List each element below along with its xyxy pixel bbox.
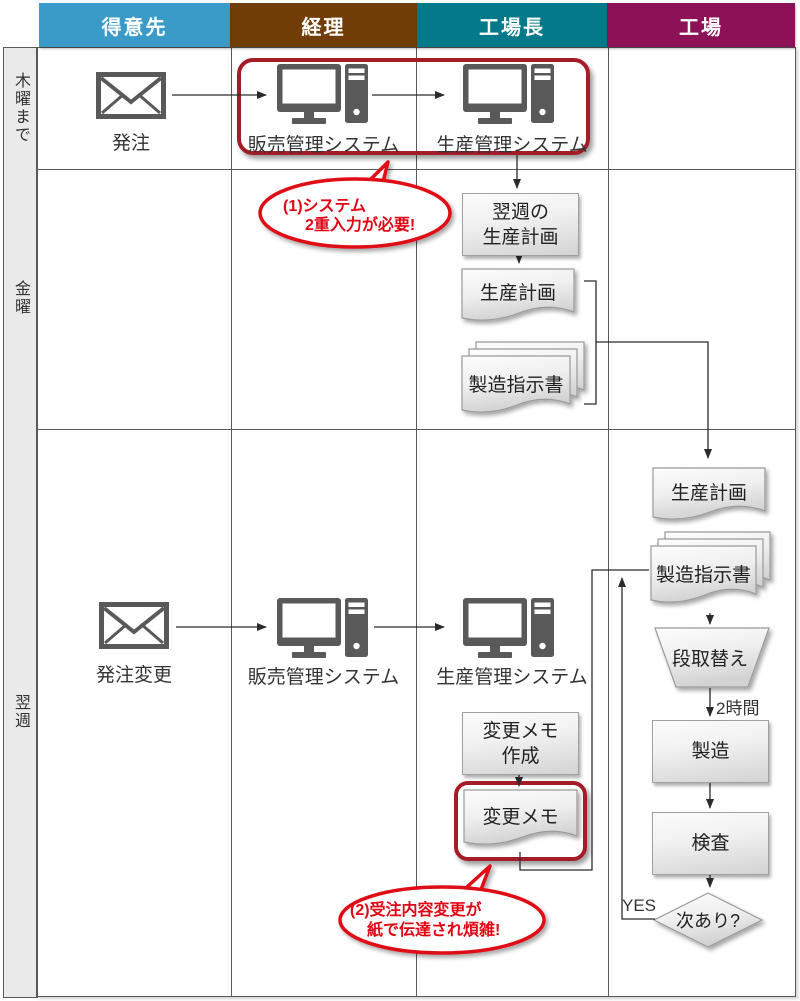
- weekly-production-plan-box: 翌週の 生産計画: [462, 193, 579, 256]
- callout2-line2: 紙で伝達され煩雑!: [367, 916, 500, 940]
- memo-create-line1: 変更メモ: [482, 719, 558, 744]
- decision-diamond-shape: [654, 893, 762, 947]
- order-change-label: 発注変更: [74, 660, 194, 687]
- document-stack-shape: [651, 532, 770, 602]
- production-system-label: 生産管理システム: [420, 130, 604, 157]
- callout1-line2: 2重入力が必要!: [305, 211, 415, 235]
- duration-label: 2時間: [716, 694, 759, 719]
- envelope-icon: [99, 75, 164, 117]
- document-shape: [653, 468, 765, 519]
- document-stack-shape: [462, 342, 584, 412]
- document-shape: [462, 269, 574, 320]
- computer-icon: [463, 64, 554, 124]
- weekly-plan-line1: 翌週の: [492, 200, 549, 225]
- computer-icon: [277, 64, 368, 124]
- document-shape: [464, 790, 577, 844]
- computer-icon: [463, 598, 554, 658]
- computer-icon: [277, 598, 368, 658]
- envelope-icon: [102, 605, 167, 647]
- sales-system-label: 販売管理システム: [230, 130, 417, 157]
- yes-label: YES: [622, 896, 656, 916]
- memo-create-box: 変更メモ 作成: [462, 712, 579, 775]
- order-label: 発注: [76, 128, 186, 155]
- manufacturing-box: 製造: [652, 720, 769, 783]
- production-system-label: 生産管理システム: [420, 662, 604, 689]
- trapezoid-shape: [655, 628, 769, 687]
- swimlane-flowchart: 得意先 経理 工場長 工場 木曜まで 金曜 翌週: [0, 0, 800, 1001]
- sales-system-label: 販売管理システム: [230, 662, 417, 689]
- weekly-plan-line2: 生産計画: [482, 225, 558, 250]
- memo-create-line2: 作成: [501, 744, 539, 769]
- inspection-box: 検査: [652, 812, 769, 875]
